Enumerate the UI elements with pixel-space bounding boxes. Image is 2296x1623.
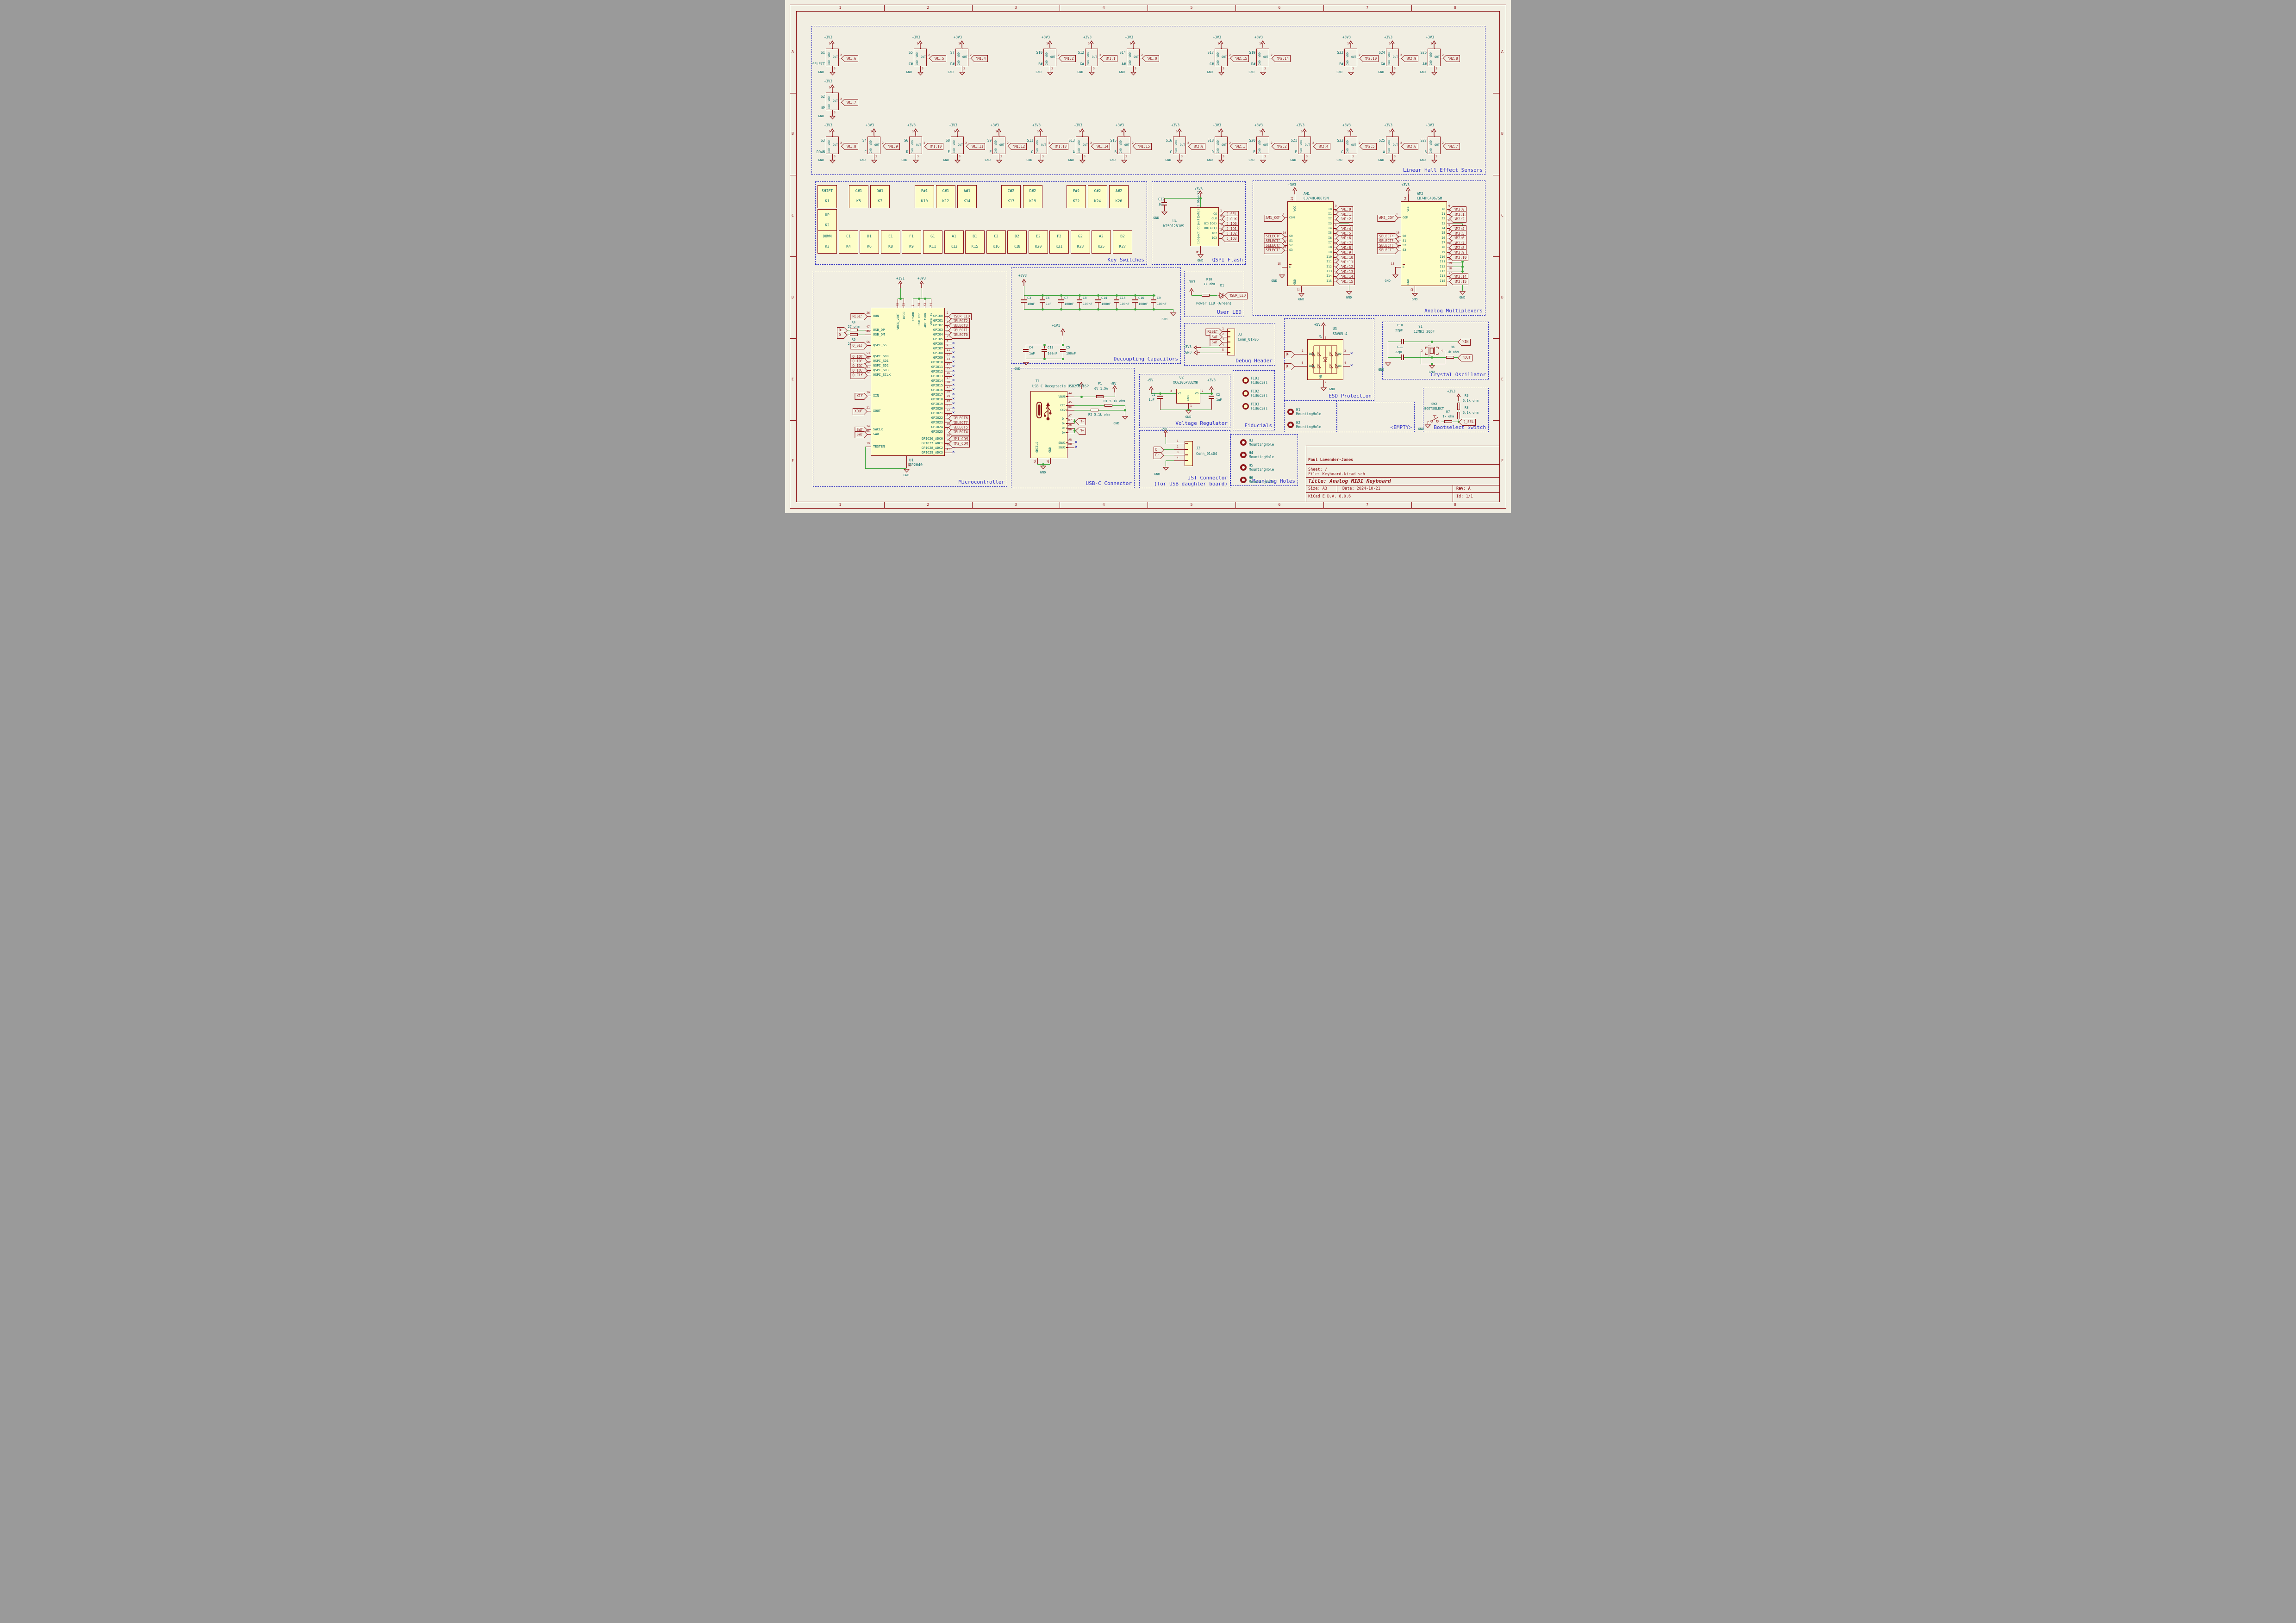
label: D+	[1062, 427, 1066, 430]
label: I1	[1328, 212, 1332, 216]
junction-dot	[1461, 261, 1464, 263]
wire	[1434, 154, 1435, 160]
value-label: D	[906, 150, 908, 154]
label: 12	[947, 354, 950, 356]
label: 4	[1197, 251, 1199, 253]
label: DO(IO1)	[1204, 227, 1217, 230]
label: Power LED (Green)	[1196, 302, 1232, 305]
label: 1	[1190, 405, 1192, 408]
label: S1	[1403, 239, 1406, 243]
label: S2	[1289, 244, 1293, 247]
value-label: E	[948, 150, 950, 154]
key-label: E1	[888, 235, 893, 238]
label: S1	[1034, 460, 1037, 463]
ref-S4: S4	[862, 139, 867, 143]
label: 15	[1391, 263, 1394, 266]
label: 5	[1448, 224, 1450, 227]
crystal-icon	[1423, 346, 1440, 355]
global-label-AM2:14: AM2:14	[1275, 55, 1291, 62]
gnd-symbol-icon	[1218, 72, 1224, 75]
switch-icon	[1429, 416, 1441, 423]
wire	[1067, 448, 1074, 448]
label: 100nF	[1064, 303, 1074, 306]
label: 27	[947, 386, 950, 389]
label: 28	[947, 391, 950, 393]
grid-col-label: 4	[1103, 6, 1105, 10]
no-connect-x: ×	[952, 383, 955, 387]
label: OUT	[1263, 144, 1268, 147]
label: 3	[1394, 155, 1396, 158]
capacitor-plate	[1060, 351, 1066, 352]
global-label-AM2:0: AM2:0	[1192, 143, 1205, 150]
label: +1V1	[896, 277, 905, 280]
ref-S12: S12	[1078, 51, 1084, 55]
label: 100nF	[1083, 303, 1092, 306]
key-label: G#1	[942, 189, 949, 193]
gnd-label: GND	[901, 159, 907, 162]
label: SWCLK	[873, 428, 883, 431]
junction-dot	[1431, 356, 1433, 359]
label: 2	[1099, 54, 1101, 57]
wire	[865, 468, 906, 469]
junction-dot	[1153, 308, 1155, 311]
capacitor-plate	[1132, 302, 1138, 303]
label: 48	[918, 303, 921, 306]
gnd-label: GND	[1378, 71, 1384, 74]
value-label: UP	[821, 106, 825, 110]
grid-tick	[1323, 5, 1324, 11]
gnd-label: GND	[1336, 159, 1342, 162]
grid-tick	[884, 5, 885, 11]
key-label: A#2	[1116, 189, 1122, 193]
wire	[1445, 351, 1445, 364]
label: GND	[828, 104, 831, 109]
label: R4	[852, 321, 855, 324]
grid-tick	[1493, 93, 1499, 93]
label: GPIO23	[931, 421, 943, 424]
label: +5V	[1314, 323, 1321, 327]
label: I13	[1326, 270, 1332, 273]
wire	[1124, 154, 1124, 160]
key-label: F#1	[921, 189, 928, 193]
wire	[1200, 353, 1220, 353]
global-label-D+: D+	[1154, 452, 1161, 459]
label: COM	[1289, 216, 1295, 219]
label: VDD	[1036, 140, 1039, 145]
label: 2	[1359, 54, 1360, 57]
capacitor-plate	[1132, 299, 1138, 300]
label: J1	[1035, 379, 1039, 383]
sheet-border	[796, 11, 797, 502]
capacitor-plate	[1040, 299, 1045, 300]
ref-AM2: AM2	[1417, 192, 1423, 196]
label: 3	[1084, 155, 1086, 158]
no-connect-x: ×	[952, 351, 955, 355]
value-label: C	[864, 150, 867, 154]
power-arrow-icon	[1021, 279, 1027, 286]
pin-pad	[1185, 460, 1188, 461]
key-ref: K27	[1119, 245, 1126, 249]
label: I9	[1328, 251, 1332, 254]
capacitor-plate	[1023, 349, 1029, 350]
label: 56	[867, 341, 870, 344]
label: D1	[1220, 284, 1224, 287]
label: 1	[995, 130, 997, 133]
junction-dot	[1153, 294, 1155, 297]
label: U4	[1173, 219, 1177, 223]
label: 1	[1222, 327, 1224, 330]
label: A7	[1068, 415, 1072, 417]
gnd-symbol-icon	[1260, 160, 1266, 163]
wire	[832, 66, 833, 72]
label: 24	[867, 425, 870, 428]
power-arrow-icon	[1292, 187, 1298, 194]
power-label: +3V3	[1342, 124, 1351, 127]
titleblock-size: Size: A3	[1308, 487, 1327, 491]
grid-tick	[1235, 5, 1236, 11]
label: GND	[1153, 217, 1159, 220]
label: GND	[1161, 318, 1167, 321]
label: 53	[867, 352, 870, 355]
label: 1k ohm	[1204, 283, 1215, 286]
key-ref: K8	[888, 245, 893, 249]
label: 4	[1222, 343, 1224, 347]
global-label-Q_IO3: Q_IO3	[1225, 235, 1239, 242]
key-label: D#2	[1029, 189, 1036, 193]
label: +5V	[1147, 379, 1154, 382]
label: 47	[867, 326, 870, 329]
label: 5	[1335, 224, 1337, 227]
label: GND	[1329, 388, 1335, 391]
wire	[1192, 295, 1202, 296]
gnd-label: GND	[948, 71, 954, 74]
no-connect-x: ×	[952, 355, 955, 360]
label: +5V	[1161, 428, 1167, 431]
label: GPIO0	[933, 315, 943, 318]
gnd-label: GND	[1165, 159, 1171, 162]
titleblock-author: Paul Lavender-Jones	[1308, 458, 1353, 462]
label: QSPI_SD1	[873, 360, 889, 363]
label: +3V3	[1187, 280, 1195, 284]
global-label-SELECT4: SELECT4	[952, 429, 970, 436]
gnd-label: GND	[1207, 159, 1213, 162]
label: OUT	[1050, 56, 1055, 59]
label: 11	[947, 349, 950, 352]
capacitor-plate	[1157, 398, 1163, 399]
global-label-AM2:6: AM2:6	[1404, 143, 1418, 150]
key-ref: K17	[1008, 199, 1014, 203]
power-arrow-icon	[898, 280, 903, 288]
wire	[1174, 460, 1185, 461]
label: +3V3	[1288, 183, 1296, 187]
label: GND	[1048, 447, 1052, 453]
label: 3	[1135, 67, 1136, 70]
label: 3	[1394, 67, 1396, 70]
wire	[1404, 357, 1446, 358]
label: I4	[1328, 227, 1332, 230]
label: C1	[1152, 393, 1155, 397]
label: VDD	[1217, 52, 1220, 57]
label: C6	[1046, 297, 1049, 300]
key-ref: K12	[942, 199, 949, 203]
key-label: DOWN	[823, 235, 831, 238]
hole-inner	[1242, 454, 1244, 456]
power-label: +3V3	[1384, 124, 1392, 127]
label: A1	[1047, 460, 1050, 463]
label: GPIO19	[931, 403, 943, 406]
ref-S20: S20	[1249, 139, 1255, 143]
label: GND	[1300, 148, 1303, 153]
junction-dot	[1159, 392, 1161, 395]
label: [object Object]	[1197, 190, 1200, 218]
label: VDD	[1388, 52, 1391, 57]
gnd-label: GND	[1026, 159, 1032, 162]
label: 1	[958, 42, 960, 45]
label: 1	[1217, 130, 1219, 133]
global-label-AM1:10: AM1:10	[928, 143, 943, 150]
label: 6	[1220, 215, 1222, 218]
label: OUT	[1263, 56, 1268, 59]
wire	[1173, 309, 1173, 312]
global-label-SELECT7: SELECT7	[1377, 247, 1395, 254]
label: GND	[828, 148, 831, 153]
label: Fiducial	[1251, 407, 1267, 410]
global-label-AM1_COM: AM1_COM	[1264, 215, 1282, 222]
wire	[1434, 66, 1435, 72]
key-label: G1	[930, 235, 935, 238]
power-label: +3V3	[866, 124, 874, 127]
label: 1	[1347, 42, 1349, 45]
label: GPIO21	[931, 412, 943, 415]
power-label: +3V3	[824, 80, 832, 83]
ref-S15: S15	[1110, 139, 1117, 143]
junction-dot	[1043, 344, 1046, 346]
label: 3	[1435, 67, 1437, 70]
resistor-body	[850, 333, 858, 336]
grid-col-label: 4	[1103, 503, 1105, 507]
no-connect-x: ×	[952, 346, 955, 350]
label: 12MHz 20pF	[1414, 330, 1435, 334]
grid-row-label: E	[792, 378, 794, 381]
label: 2	[840, 142, 842, 145]
key-ref: K3	[825, 245, 830, 249]
label: GND	[1217, 60, 1220, 65]
grid-tick	[790, 175, 796, 175]
label: 1	[1259, 42, 1261, 45]
power-label: +3V3	[1032, 124, 1041, 127]
wire	[1200, 198, 1201, 207]
value-label: F	[1295, 150, 1297, 154]
label: GND	[958, 60, 961, 65]
value-label: SELECT	[812, 62, 825, 66]
wire	[1351, 66, 1351, 72]
label: SRV05-4	[1333, 332, 1348, 336]
label: 3	[1352, 155, 1354, 158]
label: GND	[1388, 148, 1391, 153]
section-title-esd: ESD Protection	[1329, 393, 1372, 398]
gnd-symbol-icon	[1346, 291, 1352, 295]
wire	[1026, 359, 1026, 361]
power-label: +3V3	[1296, 124, 1304, 127]
label: VDD	[1217, 140, 1220, 145]
label: GPIO12	[931, 370, 943, 373]
pin-pad	[1227, 352, 1230, 353]
grid-row-label: B	[1501, 132, 1504, 136]
global-label-AM1:5: AM1:5	[932, 55, 946, 62]
label: IO3	[1211, 236, 1217, 240]
label: GND	[953, 148, 956, 153]
value-label: G	[1031, 150, 1033, 154]
label: OUT	[874, 144, 880, 147]
gnd-arrow-left-icon	[1193, 350, 1200, 355]
label: GND	[1378, 368, 1384, 372]
grid-col-label: 7	[1366, 6, 1368, 10]
gnd-label: GND	[1077, 71, 1083, 74]
label: I9	[1441, 251, 1445, 254]
ref-S13: S13	[1068, 139, 1075, 143]
label: GND	[1046, 60, 1048, 65]
usb-logo-icon	[1036, 400, 1053, 422]
section-title-mcu: Microcontroller	[959, 479, 1004, 485]
label: +3V3	[1401, 183, 1410, 187]
label: 3	[834, 111, 836, 114]
grid-col-label: 5	[1191, 503, 1193, 507]
label: VDD	[1430, 140, 1433, 145]
label: C15	[1120, 297, 1126, 300]
power-label: +3V3	[1426, 36, 1434, 39]
label: D-	[1062, 417, 1066, 421]
wire	[1074, 397, 1096, 397]
wire	[1133, 66, 1134, 72]
label: OUT	[921, 56, 926, 59]
global-label-AM2:10: AM2:10	[1453, 254, 1468, 261]
grid-col-label: 6	[1278, 6, 1280, 10]
wire	[1174, 455, 1185, 455]
grid-tick	[1060, 5, 1060, 11]
label: GND	[1418, 428, 1424, 431]
resistor-body	[1446, 356, 1454, 359]
value-label: C#	[909, 62, 913, 66]
label: GPIO14	[931, 379, 943, 383]
capacitor-plate	[1077, 299, 1082, 300]
value-label: B	[1114, 150, 1117, 154]
label: I5	[1441, 231, 1445, 235]
label: 5.1k ohm	[1463, 399, 1479, 403]
section-title-xtal: Crystal Oscillator	[1431, 372, 1486, 377]
label: 44	[930, 303, 933, 306]
label: 9	[1448, 205, 1450, 208]
key-ref: K11	[930, 245, 936, 249]
label: VDD	[828, 140, 831, 145]
label: 3	[917, 155, 919, 158]
pin-pad	[1066, 410, 1068, 410]
gnd-symbol-icon	[1023, 362, 1029, 366]
gnd-symbol-icon	[1170, 312, 1176, 316]
gnd-symbol-icon	[1385, 362, 1391, 366]
label: 2	[1048, 142, 1050, 145]
junction-dot	[1431, 363, 1433, 365]
label: 3	[1344, 350, 1346, 353]
no-connect-x: ×	[952, 379, 955, 383]
label: 38	[947, 435, 950, 437]
pin-pad	[1227, 342, 1230, 342]
key-ref: K26	[1116, 199, 1122, 203]
gnd-label: GND	[985, 159, 991, 162]
global-label-D-: D-	[837, 332, 844, 339]
wire	[1050, 458, 1051, 464]
label: 1	[1120, 130, 1122, 133]
label: C2	[1216, 393, 1220, 397]
label: GPIO20	[931, 407, 943, 410]
wire	[1067, 433, 1074, 433]
power-label: +3V3	[1171, 124, 1179, 127]
wire	[1024, 286, 1024, 295]
junction-dot	[1042, 463, 1044, 466]
label: 1	[1301, 130, 1303, 133]
power-label: +3V3	[824, 124, 832, 127]
key-ref: K20	[1035, 245, 1042, 249]
grid-tick	[972, 502, 973, 508]
grid-tick	[972, 5, 973, 11]
grid-tick	[790, 256, 796, 257]
wire	[1174, 449, 1185, 450]
label: 1	[1302, 350, 1304, 353]
label: OUT	[1092, 56, 1097, 59]
label: VDD	[1300, 140, 1303, 145]
label: OUT	[1393, 56, 1398, 59]
grid-tick	[1411, 502, 1412, 508]
ref-S5: S5	[909, 51, 913, 55]
label: VDD	[828, 52, 831, 57]
power-label: +3V3	[1213, 36, 1221, 39]
wire	[1221, 66, 1222, 72]
titleblock-sheet: Sheet: /	[1308, 468, 1327, 472]
ref-U1: U1	[909, 459, 914, 462]
global-label-AM2_COM: AM2_COM	[1377, 215, 1395, 222]
value-label: D	[1211, 150, 1214, 154]
label: 3	[834, 155, 836, 158]
wire	[865, 447, 866, 468]
label: +1V1	[1052, 324, 1060, 328]
label: VDD	[953, 140, 956, 145]
junction-dot	[1116, 294, 1118, 297]
label: I12	[1326, 265, 1332, 268]
label: I11	[1326, 260, 1332, 263]
label: R5	[852, 338, 855, 342]
gnd-label: GND	[906, 71, 912, 74]
no-connect-x: ×	[952, 392, 955, 397]
titleblock-border	[1306, 446, 1306, 502]
titleblock-border	[1306, 446, 1500, 446]
label: 5	[947, 326, 948, 329]
label: 13	[947, 358, 950, 361]
label: GND	[904, 474, 910, 477]
wire	[1041, 154, 1041, 160]
key-label: F1	[909, 235, 914, 238]
capacitor-plate	[1077, 302, 1082, 303]
label: 3	[1220, 229, 1222, 232]
grid-row-label: C	[1501, 214, 1504, 218]
label: SWD	[873, 433, 879, 436]
ref-S11: S11	[1027, 139, 1033, 143]
label: GPIO9	[933, 356, 943, 360]
label: GND	[1185, 416, 1192, 419]
gnd-symbol-icon	[1392, 274, 1398, 278]
global-label-D-: D-	[1284, 363, 1291, 370]
gnd-label: GND	[1248, 159, 1254, 162]
junction-dot	[1043, 358, 1046, 360]
label: 2	[1090, 142, 1092, 145]
